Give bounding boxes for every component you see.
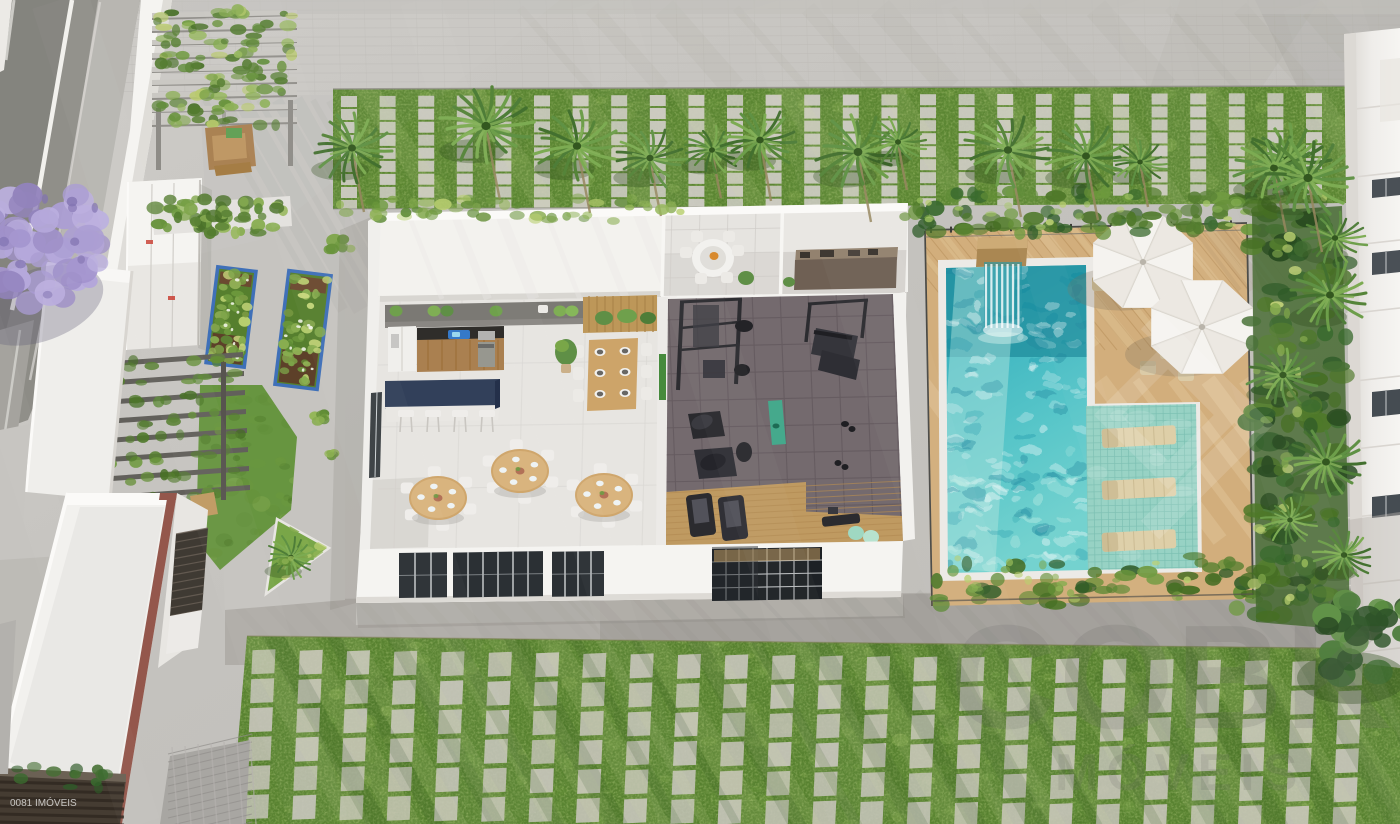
svg-text:0081 IMÓVEIS: 0081 IMÓVEIS [10,796,77,809]
